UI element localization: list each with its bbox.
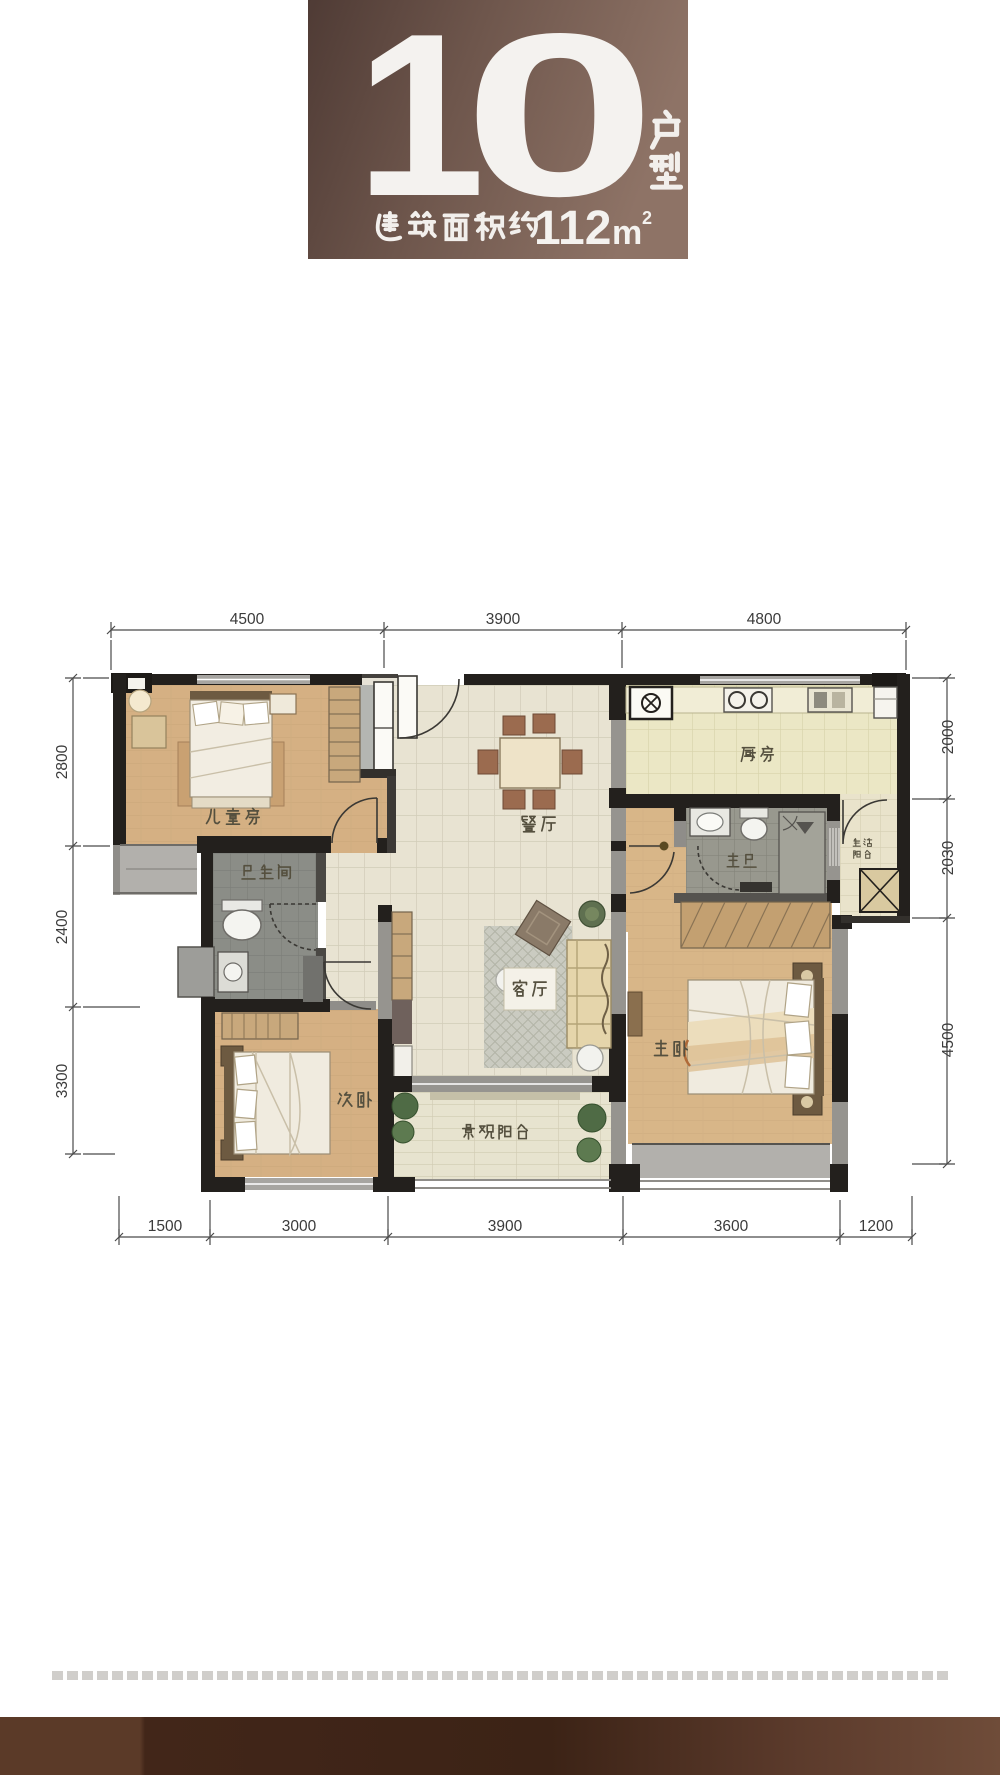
svg-text:4800: 4800 [747,611,782,628]
svg-text:2800: 2800 [54,744,71,779]
svg-text:2400: 2400 [54,909,71,944]
svg-text:1200: 1200 [859,1218,894,1235]
svg-text:2000: 2000 [940,719,957,754]
svg-text:2030: 2030 [940,840,957,875]
svg-text:3300: 3300 [54,1063,71,1098]
svg-text:4500: 4500 [940,1022,957,1057]
svg-text:2: 2 [642,208,652,228]
svg-text:4500: 4500 [230,611,265,628]
svg-text:3900: 3900 [488,1218,523,1235]
svg-text:3600: 3600 [714,1218,749,1235]
svg-text:112: 112 [534,202,611,255]
svg-text:3000: 3000 [282,1218,317,1235]
svg-text:3900: 3900 [486,611,521,628]
svg-text:1500: 1500 [148,1218,183,1235]
svg-text:m: m [612,214,642,252]
